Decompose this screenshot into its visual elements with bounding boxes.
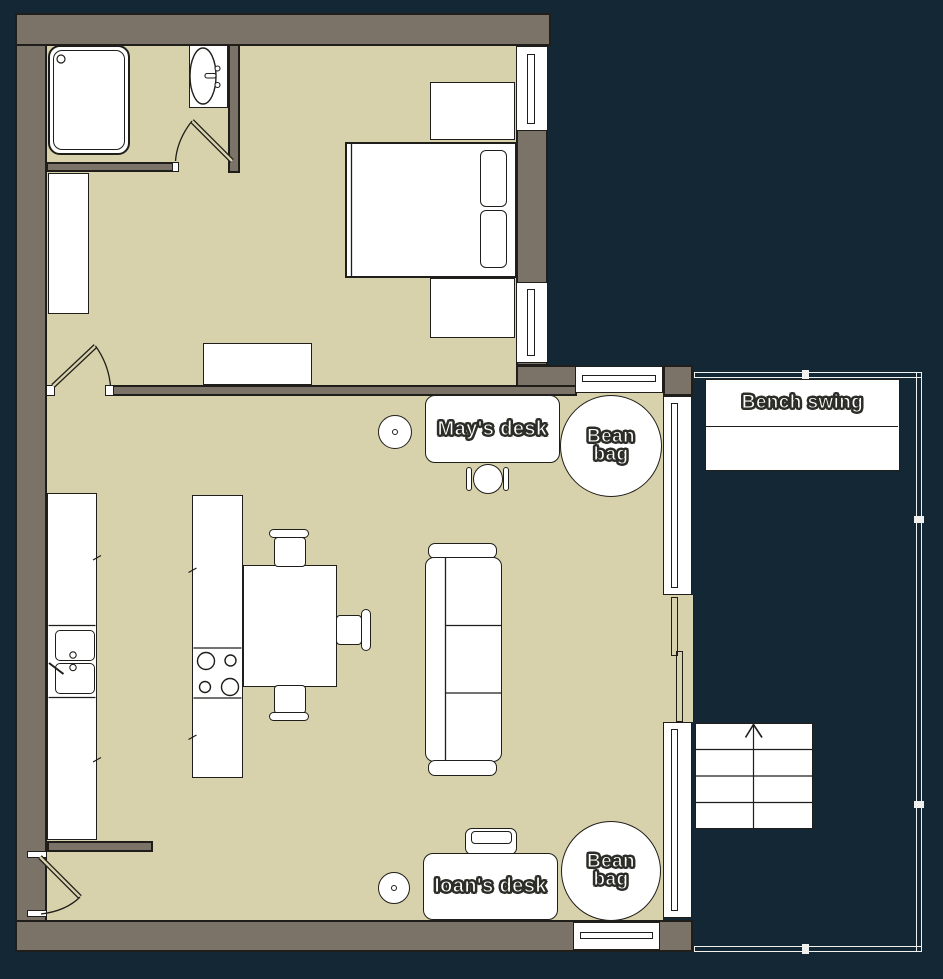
wall-left: [15, 13, 47, 952]
pillow: [480, 150, 507, 207]
desk-chair-cushion: [471, 831, 512, 844]
ioans-desk-text: Ioan's desk: [434, 875, 547, 898]
dining-chair-top[interactable]: [274, 537, 306, 567]
stairs: [695, 723, 813, 829]
bean-bag-bottom-label: Bean bag: [561, 821, 661, 921]
wall-bathroom-bottom: [46, 162, 174, 172]
wall-extension-right-block: [663, 365, 693, 396]
sofa-armrest: [428, 760, 497, 776]
deck-railing-right: [916, 372, 922, 952]
window-glass: [580, 932, 653, 939]
bean-bag-top-label: Bean bag: [560, 395, 662, 497]
window-glass: [582, 375, 656, 382]
mays-desk-label: May's desk: [425, 395, 560, 463]
wall-top: [15, 13, 551, 46]
door-sill: [27, 851, 47, 858]
dining-chair-back: [361, 609, 371, 651]
wall-bathroom-stub: [228, 44, 240, 173]
stool-center: [391, 885, 397, 891]
wardrobe-bottom-right[interactable]: [430, 278, 515, 338]
pillow: [480, 210, 507, 268]
door-sill: [46, 385, 55, 396]
wall-kitchen-half: [47, 841, 153, 852]
desk-chair-mays[interactable]: [473, 464, 503, 494]
bean-bag-text-line2: bag: [594, 871, 629, 889]
wardrobe-left[interactable]: [48, 173, 89, 314]
door-sill: [27, 910, 47, 917]
sliding-door-panel: [676, 651, 683, 722]
door-sill: [172, 162, 179, 172]
sofa[interactable]: [425, 557, 502, 762]
railing-post: [914, 516, 924, 523]
window-glass: [671, 403, 678, 588]
dining-chair-bottom[interactable]: [274, 685, 306, 714]
dining-table[interactable]: [243, 565, 337, 687]
sliding-door-panel: [671, 597, 678, 656]
mays-desk-text: May's desk: [438, 418, 548, 441]
railing-post: [802, 944, 809, 954]
bathroom-sink-counter[interactable]: [189, 45, 228, 108]
window-glass: [527, 54, 535, 124]
bench-swing-text: Bench swing: [742, 392, 864, 414]
bean-bag-text-line2: bag: [594, 446, 629, 464]
dresser[interactable]: [203, 343, 312, 385]
dining-chair-back: [269, 712, 309, 721]
bench-swing-label: Bench swing: [705, 379, 900, 427]
railing-post: [914, 801, 924, 808]
desk-chair-arm: [466, 467, 472, 491]
kitchen-island-stove[interactable]: [192, 495, 243, 778]
desk-chair-arm: [503, 467, 509, 491]
stool-center: [392, 429, 398, 435]
dining-chair-right[interactable]: [336, 615, 362, 645]
kitchen-sink-basin: [55, 630, 95, 661]
wardrobe-top-right[interactable]: [430, 82, 515, 140]
window-glass: [671, 729, 678, 911]
floor-plan: May's desk Bean bag Bench swing Ioan's d…: [0, 0, 943, 979]
window-glass: [527, 289, 535, 356]
door-sill: [105, 385, 114, 396]
ioans-desk-label: Ioan's desk: [423, 853, 558, 920]
bathtub-inner-rim: [53, 50, 125, 150]
kitchen-sink-basin: [55, 663, 95, 694]
